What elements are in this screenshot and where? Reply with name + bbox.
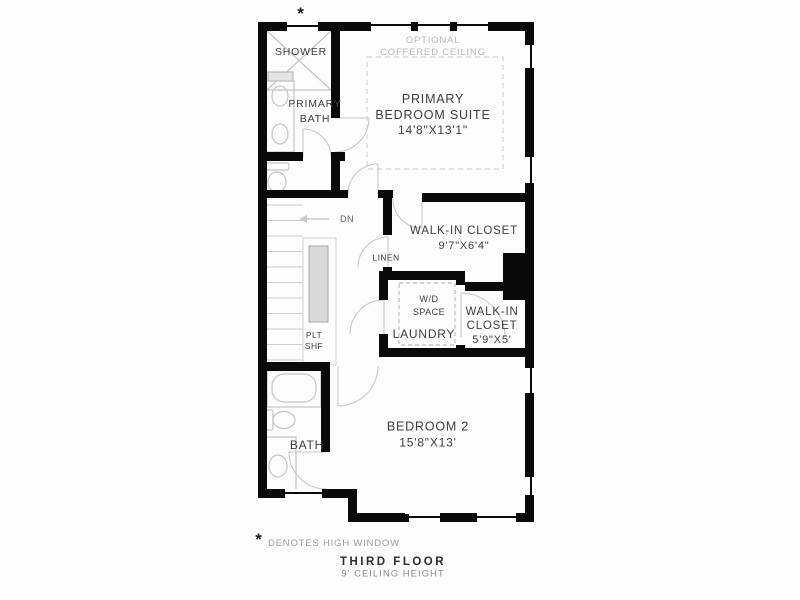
plan-subtitle: 9' CEILING HEIGHT [341, 569, 444, 580]
primary-bedroom-door [348, 164, 378, 194]
bathtub [267, 369, 321, 407]
floor-plan-drawing [0, 0, 800, 600]
window [477, 516, 516, 518]
plan-title: THIRD FLOOR [340, 556, 446, 568]
vanity-sink [269, 455, 287, 477]
shower-bench [268, 72, 293, 81]
floor-plan: * SHOWER PRIMARY BATH OPTIONAL COFFERED … [0, 0, 800, 600]
window [371, 24, 488, 26]
window [530, 368, 532, 393]
room-label-walk-in-closet-2: WALK-IN CLOSET 5'9"X5' [465, 305, 518, 347]
high-window [287, 25, 318, 27]
stair-railing [309, 246, 328, 322]
window [285, 492, 322, 494]
legend-note: DENOTES HIGH WINDOW [268, 538, 400, 549]
room-label-walk-in-closet-1: WALK-IN CLOSET 9'7"X6'4" [410, 224, 518, 254]
room-label-primary-bedroom: PRIMARY BEDROOM SUITE 14'8"X13'1" [375, 92, 490, 139]
window [530, 477, 532, 495]
room-label-bedroom-2: BEDROOM 2 15'8"X13' [387, 420, 469, 451]
window-mullion [411, 22, 418, 31]
window [405, 516, 440, 518]
coffered-ceiling-note: OPTIONAL COFFERED CEILING [380, 35, 486, 59]
bedroom2-door [338, 366, 378, 406]
wd-space-label: W/D SPACE [413, 293, 445, 319]
room-label-primary-bath: PRIMARY BATH [288, 97, 341, 127]
room-label-shower: SHOWER [275, 46, 327, 58]
high-window-asterisk: * [297, 4, 304, 24]
vanity-sink [272, 124, 288, 144]
laundry-door [350, 300, 384, 334]
plant-shelf-label: PLT SHF [305, 330, 323, 352]
room-label-laundry: LAUNDRY [393, 327, 456, 341]
legend-asterisk: * [255, 530, 262, 550]
bath2-door [289, 452, 326, 489]
primary-toilet [265, 163, 289, 192]
window [530, 157, 532, 183]
staircase [267, 205, 336, 365]
stairs-dn-label: DN [340, 214, 354, 224]
window-mullion [450, 22, 457, 31]
dn-arrow [299, 215, 329, 223]
bath2-toilet [266, 410, 295, 430]
window-mullion [404, 514, 409, 522]
vanity-sink [272, 86, 288, 106]
water-closet-door [303, 129, 331, 157]
room-label-bath: BATH [290, 438, 324, 452]
chase [503, 253, 534, 300]
room-label-linen: LINEN [372, 253, 399, 264]
window [530, 45, 532, 68]
